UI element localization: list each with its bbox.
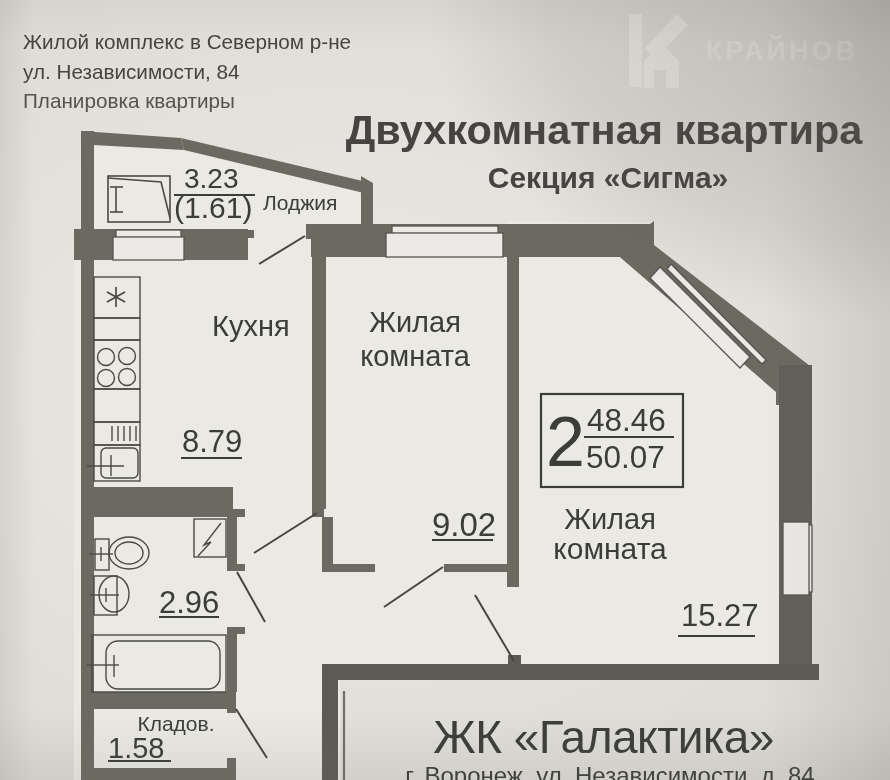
svg-text:Кухня: Кухня	[212, 310, 290, 342]
svg-text:КРАЙНОВ: КРАЙНОВ	[706, 35, 858, 66]
svg-text:9.02: 9.02	[432, 506, 496, 543]
svg-text:2: 2	[546, 403, 585, 481]
svg-text:Секция «Сигма»: Секция «Сигма»	[488, 161, 729, 194]
svg-text:2.96: 2.96	[159, 585, 219, 620]
svg-text:1.58: 1.58	[108, 732, 164, 764]
svg-text:48.46: 48.46	[587, 402, 666, 438]
svg-text:50.07: 50.07	[586, 439, 665, 475]
svg-text:комната: комната	[360, 340, 471, 372]
svg-text:Двухкомнатная квартира: Двухкомнатная квартира	[346, 106, 864, 153]
svg-text:(1.61): (1.61)	[174, 191, 252, 224]
svg-text:НЕДВИЖИМОСТЬ: НЕДВИЖИМОСТЬ	[708, 64, 864, 81]
svg-text:Лоджия: Лоджия	[263, 191, 337, 214]
svg-text:Жилая: Жилая	[564, 503, 656, 535]
svg-text:Жилая: Жилая	[369, 306, 461, 338]
svg-text:ул. Независимости, 84: ул. Независимости, 84	[23, 60, 240, 83]
svg-text:Планировка квартиры: Планировка квартиры	[23, 89, 235, 112]
svg-text:Кладов.: Кладов.	[137, 712, 214, 735]
svg-text:ЖК «Галактика»: ЖК «Галактика»	[433, 711, 774, 763]
svg-text:15.27: 15.27	[681, 598, 759, 633]
svg-text:комната: комната	[553, 532, 667, 565]
svg-text:г. Воронеж, ул. Независимости,: г. Воронеж, ул. Независимости, д. 84	[405, 762, 814, 780]
svg-text:8.79: 8.79	[182, 424, 242, 459]
svg-text:3.23: 3.23	[184, 163, 239, 194]
svg-text:Жилой комплекс в Северном р-не: Жилой комплекс в Северном р-не	[23, 30, 351, 53]
